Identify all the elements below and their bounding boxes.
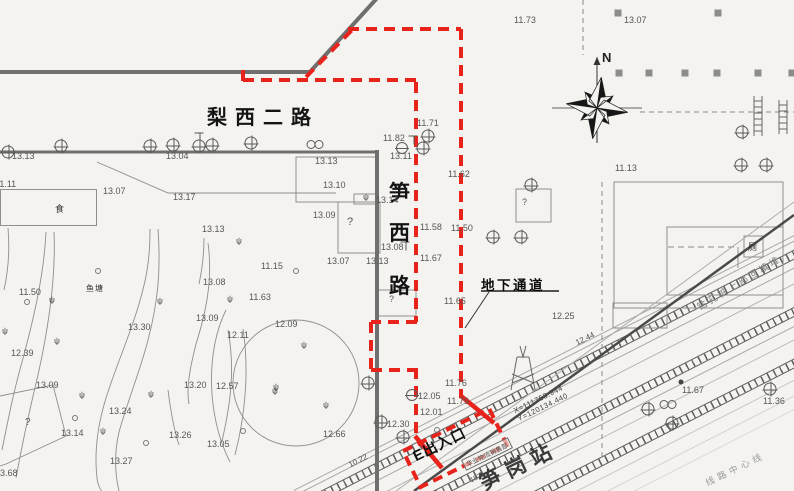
elevation-label: 12.39	[11, 348, 34, 358]
stairs-icon	[754, 96, 787, 136]
survey-symbol-oplus	[487, 231, 500, 244]
survey-symbol-oplus	[736, 126, 749, 139]
elevation-label: 11.67	[420, 253, 442, 263]
underpass-label: 地下通道	[481, 274, 545, 294]
survey-symbol-dotf	[679, 380, 684, 385]
elevation-label: 13.07	[624, 15, 647, 25]
elevation-label: 13.14	[61, 428, 84, 438]
elevation-label: 13.13	[366, 256, 389, 266]
vegetation-symbol: ψ	[236, 237, 242, 246]
elevation-label: 13.09	[196, 313, 219, 323]
site-plan-map: 梨西二路 笋 西 路 地下通道 E出入口 笋岗站 N X=111753.944 …	[0, 0, 794, 491]
elevation-label: 11.82	[383, 133, 405, 143]
elevation-label: 12.01	[420, 407, 443, 417]
vegetation-symbol: ψ	[323, 401, 329, 410]
survey-symbol-tpole	[409, 136, 418, 145]
vegetation-symbol: ψ	[363, 193, 369, 202]
elevation-label: 11.79	[447, 396, 469, 406]
elevation-label: 13.08	[381, 242, 404, 252]
grid-square	[646, 70, 653, 77]
unknown-building-mark: ?	[347, 216, 353, 228]
elevation-label: 13.08	[203, 277, 226, 287]
grid-square	[714, 70, 721, 77]
survey-symbol-oplus	[206, 139, 219, 152]
grid-square	[615, 10, 622, 17]
contour-lines	[0, 162, 359, 491]
grid-square	[715, 10, 722, 17]
canteen-building-label: 食	[55, 202, 64, 215]
survey-symbol-oplus	[55, 140, 68, 153]
elevation-label: 13.20	[184, 380, 207, 390]
survey-symbol-odot	[143, 440, 149, 446]
survey-symbol-odot	[24, 299, 30, 305]
elevation-label: 11.71	[417, 118, 439, 128]
vegetation-symbol: ψ	[2, 327, 8, 336]
elevation-label: 13.07	[103, 186, 126, 196]
elevation-label: 12.66	[323, 429, 346, 439]
survey-symbol-odot	[240, 428, 246, 434]
survey-symbol-oplus	[167, 139, 180, 152]
track-centerline-note: 线路中心线	[703, 448, 767, 488]
elevation-label: 11.36	[763, 396, 785, 406]
elevation-label: 11.73	[514, 15, 536, 25]
vegetation-symbol: ψ	[227, 295, 233, 304]
survey-symbol-ominus	[406, 389, 418, 401]
survey-symbol-odot	[95, 268, 101, 274]
elevation-label: 13.13	[12, 151, 35, 161]
elevation-label: 11.62	[448, 169, 470, 179]
elevation-label: 12.09	[275, 319, 298, 329]
toilet-label: 厕	[748, 240, 757, 253]
elevation-label: 11.63	[249, 292, 271, 302]
survey-symbol-oplus	[760, 159, 773, 172]
elevation-label: 13.09	[36, 380, 59, 390]
survey-symbol-oplus	[417, 142, 430, 155]
survey-symbol-oplus	[515, 231, 528, 244]
elevation-label: 13.10	[323, 180, 346, 190]
vegetation-symbol: ψ	[49, 296, 55, 305]
survey-symbol-oplus	[245, 137, 258, 150]
backfill-note: 钻孔桩上部回填堆	[694, 252, 784, 313]
road-lines	[0, 0, 379, 491]
grid-square	[755, 70, 762, 77]
vegetation-symbol: ψ	[54, 337, 60, 346]
elevation-label: 13.13	[315, 156, 338, 166]
unknown-building-mark: ?	[25, 417, 31, 428]
pond-outline	[233, 320, 359, 446]
survey-symbol-oplus	[764, 383, 777, 396]
survey-symbol-oplus	[362, 377, 375, 390]
elevation-label: 11.50	[19, 287, 41, 297]
elevation-label: 13.17	[173, 192, 196, 202]
elevation-label: 13.04	[166, 151, 189, 161]
unknown-building-mark: ?	[389, 294, 394, 304]
survey-symbol-oplus	[144, 140, 157, 153]
survey-symbol-oplus	[397, 431, 410, 444]
elevation-label: 12.57	[216, 381, 239, 391]
elevation-label: 11.13	[615, 163, 637, 173]
elevation-label: 11.50	[451, 223, 473, 233]
survey-symbol-oplus	[525, 179, 538, 192]
elevation-label: 11.11	[0, 179, 16, 189]
elevation-label: 13.30	[128, 322, 151, 332]
north-compass	[552, 57, 642, 143]
survey-symbol-tpole	[195, 133, 204, 142]
elevation-label: 12.25	[552, 311, 575, 321]
elevation-label: 13.11	[390, 151, 412, 161]
road-label-lixi-er-road: 梨西二路	[207, 101, 319, 130]
survey-symbol-oo	[660, 400, 677, 408]
fish-pond-label: 鱼塘	[86, 283, 104, 294]
elevation-label: 11.76	[445, 378, 467, 388]
vegetation-symbol: ψ	[79, 391, 85, 400]
elevation-label: 12.05	[418, 391, 441, 401]
survey-symbol-oplus	[642, 403, 655, 416]
elevation-label: 12.11	[227, 330, 249, 340]
elevation-label: 11.58	[420, 222, 442, 232]
underpass-leader-line	[465, 292, 489, 328]
elevation-label: 13.13	[202, 224, 225, 234]
elevation-label: 13.68	[0, 468, 18, 478]
elevation-label: 13.05	[207, 439, 230, 449]
survey-symbol-oplus	[666, 417, 679, 430]
vegetation-symbol: ψ	[100, 427, 106, 436]
survey-symbol-oplus	[735, 159, 748, 172]
elevation-label: 13.07	[327, 256, 350, 266]
elevation-label: 11.15	[261, 261, 283, 271]
elevation-label: 11.65	[444, 296, 466, 306]
vegetation-symbol: ψ	[272, 387, 278, 396]
rotated-elevation-label: 12.44	[574, 330, 596, 347]
vegetation-symbol: ψ	[148, 390, 154, 399]
grid-square	[616, 70, 623, 77]
survey-symbol-oplus	[375, 416, 388, 429]
elevation-label: 13.27	[110, 456, 133, 466]
elevation-label: 13.26	[169, 430, 192, 440]
elevation-label: 13.09	[313, 210, 336, 220]
survey-symbol-odot	[293, 268, 299, 274]
elevation-label: 12.30	[387, 419, 410, 429]
elevation-label: 13.14	[376, 195, 399, 205]
north-label: N	[602, 50, 611, 65]
vegetation-symbol: ψ	[301, 341, 307, 350]
elevation-label: 11.67	[682, 385, 704, 395]
grid-square	[682, 70, 689, 77]
unknown-building-mark: ?	[522, 197, 527, 207]
survey-symbol-oo	[307, 140, 324, 148]
elevation-label: 13.24	[109, 406, 132, 416]
grid-square	[789, 70, 794, 77]
vegetation-symbol: ψ	[157, 297, 163, 306]
survey-symbol-odot	[72, 415, 78, 421]
